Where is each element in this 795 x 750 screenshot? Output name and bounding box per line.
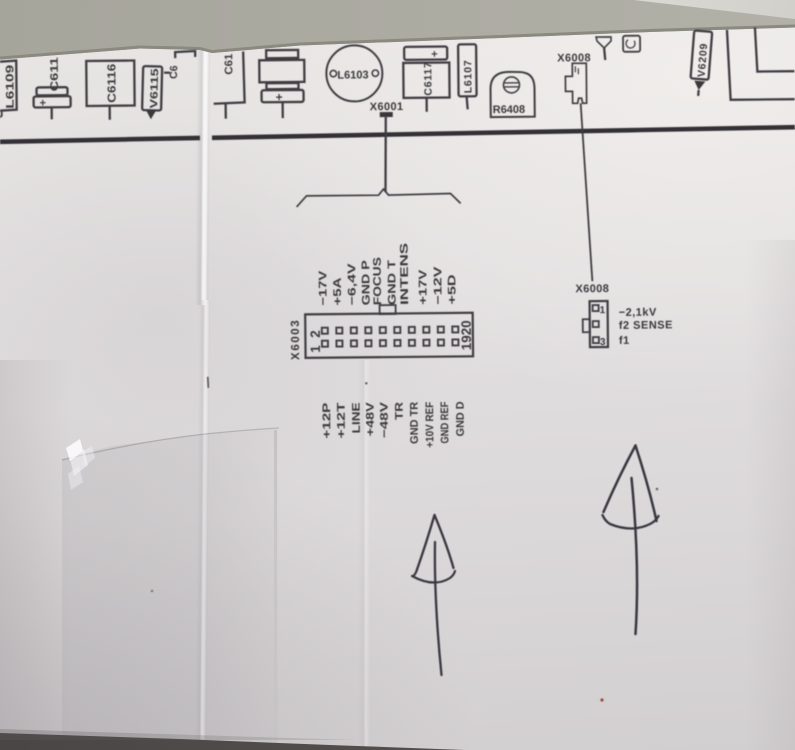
svg-text:+48V: +48V xyxy=(365,401,377,436)
svg-text:X6008: X6008 xyxy=(575,283,609,295)
svg-text:+5A: +5A xyxy=(332,277,344,305)
svg-text:+: + xyxy=(276,90,283,104)
svg-text:−12V: −12V xyxy=(432,266,444,305)
svg-text:C6116: C6116 xyxy=(106,64,118,103)
svg-text:V6115: V6115 xyxy=(148,68,161,108)
svg-text:GND P: GND P xyxy=(360,260,372,305)
svg-text:C61: C61 xyxy=(223,54,235,75)
svg-text:INTENS: INTENS xyxy=(398,243,411,305)
svg-text:L6107: L6107 xyxy=(462,59,474,93)
svg-text:1: 1 xyxy=(600,305,606,316)
svg-text:+17V: +17V xyxy=(417,269,429,305)
svg-text:−2,1kV: −2,1kV xyxy=(619,307,657,319)
svg-text:+12P: +12P xyxy=(321,403,333,439)
svg-text:20: 20 xyxy=(459,320,474,335)
svg-text:1: 1 xyxy=(308,345,323,353)
svg-text:C6117: C6117 xyxy=(422,61,434,95)
svg-text:2: 2 xyxy=(308,330,323,338)
svg-text:TR: TR xyxy=(394,402,406,420)
svg-text:−17V: −17V xyxy=(317,270,329,306)
svg-text:GND T: GND T xyxy=(386,260,398,305)
svg-text:GND TR: GND TR xyxy=(409,402,421,444)
svg-text:+5D: +5D xyxy=(446,274,458,304)
svg-text:+: + xyxy=(431,49,438,61)
svg-text:−48V: −48V xyxy=(379,401,391,438)
svg-text:GND REF: GND REF xyxy=(439,401,451,443)
svg-text:L6103: L6103 xyxy=(337,69,368,81)
svg-text:C6: C6 xyxy=(168,65,180,79)
svg-text:X6001: X6001 xyxy=(370,101,404,113)
svg-text:LINE: LINE xyxy=(351,402,363,433)
svg-text:+12T: +12T xyxy=(336,402,348,438)
svg-text:+: + xyxy=(40,97,47,109)
svg-text:L6109: L6109 xyxy=(4,65,16,109)
svg-text:FOCUS: FOCUS xyxy=(372,257,384,305)
svg-text:f2 SENSE: f2 SENSE xyxy=(619,319,673,332)
svg-text:f1: f1 xyxy=(619,335,630,347)
svg-text:−6,4V: −6,4V xyxy=(346,262,358,305)
svg-text:3: 3 xyxy=(600,337,606,348)
svg-text:GND D: GND D xyxy=(455,401,467,436)
svg-text:X6003: X6003 xyxy=(290,319,302,360)
svg-text:19: 19 xyxy=(459,335,474,350)
svg-text:+10V REF: +10V REF xyxy=(424,401,436,447)
svg-text:R6408: R6408 xyxy=(493,104,526,116)
